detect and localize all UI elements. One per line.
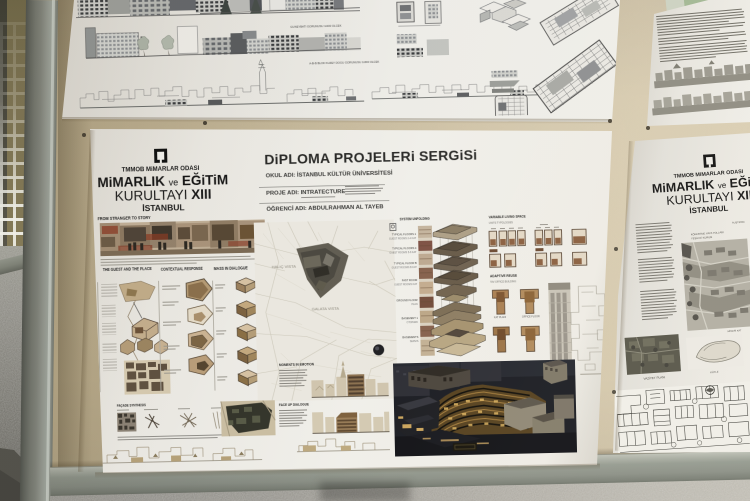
svg-text:KURULTAYI XIII: KURULTAYI XIII	[115, 187, 212, 204]
svg-text:SYSTEM UNFOLDING: SYSTEM UNFOLDING	[400, 217, 430, 222]
svg-text:ADAPTIVE REUSE: ADAPTIVE REUSE	[490, 274, 517, 279]
svg-text:GUEST ROOMS KAT: GUEST ROOMS KAT	[394, 283, 418, 287]
svg-text:GUEST ROOMS 2-4 KAT: GUEST ROOMS 2-4 KAT	[389, 237, 417, 241]
svg-text:MİMARİ KAT: MİMARİ KAT	[728, 329, 742, 333]
svg-text:FAÇADE SYNTHESIS: FAÇADE SYNTHESIS	[117, 403, 147, 408]
svg-text:GROUND FLOOR: GROUND FLOOR	[396, 298, 417, 302]
svg-text:FAST ROOM: FAST ROOM	[402, 278, 417, 282]
svg-text:A-B-B BLOK KUZEY DOGU GORUNUSU: A-B-B BLOK KUZEY DOGU GORUNUSU 1/200 OLC…	[309, 60, 379, 66]
svg-text:TAV OFFICE BUILDING: TAV OFFICE BUILDING	[490, 279, 517, 284]
svg-text:OTOPARK: OTOPARK	[407, 321, 419, 324]
svg-text:İSTANBUL: İSTANBUL	[689, 204, 729, 216]
svg-text:GALATA VISTA: GALATA VISTA	[312, 306, 340, 312]
svg-text:KAT PLANI: KAT PLANI	[494, 316, 506, 319]
svg-text:FROM STRANGER TO STORY: FROM STRANGER TO STORY	[98, 215, 151, 221]
svg-text:GUEST ROOMS 5-8 KAT: GUEST ROOMS 5-8 KAT	[389, 251, 417, 255]
svg-text:GUEST ROOMS B KAT: GUEST ROOMS B KAT	[391, 266, 417, 270]
svg-text:PROJE ADI: INTRATECTURE: PROJE ADI: INTRATECTURE	[266, 189, 345, 197]
svg-text:GUNEYBATI GORUNUSU 1/200 OLCEK: GUNEYBATI GORUNUSU 1/200 OLCEK	[290, 24, 341, 29]
svg-text:SERVIS: SERVIS	[410, 340, 419, 343]
svg-text:VARIABLE LIVING SPACE: VARIABLE LIVING SPACE	[489, 214, 526, 219]
svg-text:UNITS TYPOLOGIES: UNITS TYPOLOGIES	[489, 220, 513, 225]
svg-text:FACE UP DIALOGUE: FACE UP DIALOGUE	[279, 402, 310, 407]
svg-text:TYPICAL FLOORS 1: TYPICAL FLOORS 1	[392, 232, 417, 237]
svg-text:KÜTLE: KÜTLE	[710, 370, 719, 375]
svg-text:PLAN: PLAN	[411, 303, 418, 306]
svg-text:ÖĞRENCİ ADI: ABDULRAHMAN AL T: ÖĞRENCİ ADI: ABDULRAHMAN AL TAYEB	[266, 202, 383, 213]
svg-text:MASS IN DIALOGUE: MASS IN DIALOGUE	[214, 265, 248, 271]
svg-text:İSTANBUL: İSTANBUL	[142, 202, 185, 213]
svg-text:DiPLOMA PROJELERi SERGiSi: DiPLOMA PROJELERi SERGiSi	[264, 147, 477, 168]
svg-text:OFFICE FLOOR: OFFICE FLOOR	[522, 315, 540, 318]
svg-text:TYPICAL FLOORS 4: TYPICAL FLOORS 4	[392, 246, 417, 251]
svg-text:TYPICAL FLOOR B: TYPICAL FLOOR B	[394, 261, 417, 266]
svg-text:ALIŞTIRMA: ALIŞTIRMA	[732, 221, 745, 225]
svg-text:MOMENTS IN EMOTION: MOMENTS IN EMOTION	[279, 362, 314, 367]
svg-text:OKUL ADI: İSTANBUL KÜLTÜR ÜNİ: OKUL ADI: İSTANBUL KÜLTÜR ÜNİVERSİTESİ	[266, 169, 393, 179]
svg-text:BASEMENT 1: BASEMENT 1	[402, 316, 419, 320]
svg-text:BASEMENTS: BASEMENTS	[402, 335, 418, 339]
svg-text:VAZİYET PLANI: VAZİYET PLANI	[643, 374, 665, 381]
svg-text:HALIÇ VISTA: HALIÇ VISTA	[272, 264, 297, 270]
svg-text:THE GUEST AND THE PLACE: THE GUEST AND THE PLACE	[103, 266, 152, 272]
svg-text:CONTEXTUAL RESPONSE: CONTEXTUAL RESPONSE	[161, 266, 203, 272]
